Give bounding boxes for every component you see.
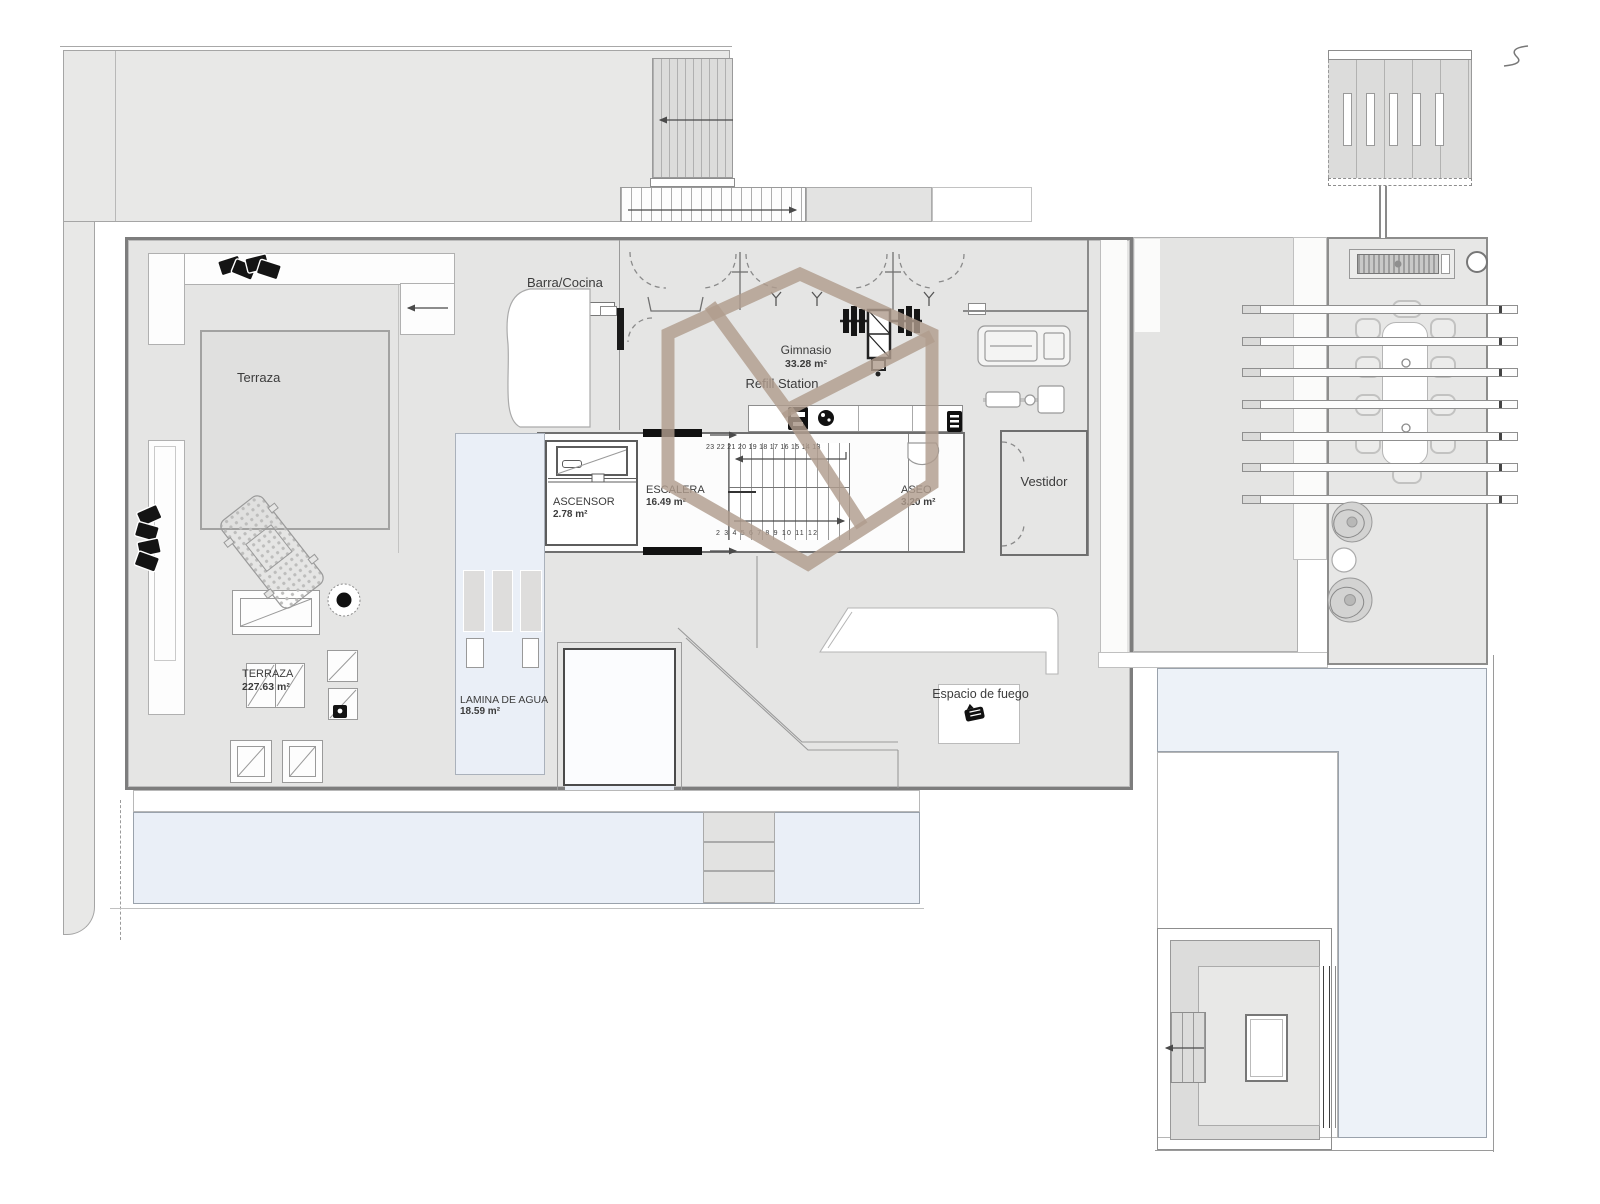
fire-icon xyxy=(963,701,985,722)
lounger xyxy=(213,489,331,615)
treadmill-icon xyxy=(978,326,1070,366)
elevator-detail xyxy=(548,474,636,482)
rowing-machine-icon xyxy=(983,386,1064,413)
vestidor-doors xyxy=(1002,442,1024,546)
bench-band xyxy=(820,608,1058,674)
aseo-name: ASEO xyxy=(901,484,935,497)
ramp-lines xyxy=(678,556,898,788)
label-refill-station: Refill Station xyxy=(722,377,842,392)
folding-door-wall xyxy=(628,252,964,342)
stair-numbers-lower: 2 3 4 5 6 7 8 9 10 11 12 xyxy=(716,530,850,538)
terraza-name: TERRAZA xyxy=(242,668,293,681)
ascensor-name: ASCENSOR xyxy=(553,496,615,509)
label-terraza-area: TERRAZA 227.63 m² xyxy=(242,668,293,693)
grinder-icon xyxy=(818,410,834,426)
label-terraza: Terraza xyxy=(237,371,280,386)
escalera-area: 16.49 m² xyxy=(646,497,705,509)
coffee-machine-icon xyxy=(788,407,808,430)
ac-center-dot xyxy=(1395,261,1402,268)
gimnasio-name: Gimnasio xyxy=(756,344,856,358)
label-lamina: LAMINA DE AGUA 18.59 m² xyxy=(460,694,548,718)
kitchen-counter xyxy=(507,289,590,427)
speaker-icon xyxy=(333,705,347,718)
direction-arrows xyxy=(408,120,1204,1048)
sink-icon xyxy=(908,443,939,465)
fire-bowl-icon xyxy=(328,584,360,616)
label-espacio-de-fuego: Espacio de fuego xyxy=(918,687,1043,701)
label-vestidor: Vestidor xyxy=(994,475,1094,490)
aseo-area: 3.20 m² xyxy=(901,497,935,509)
sprinkler-icon xyxy=(771,292,934,306)
stair-numbers-upper: 23 22 21 20 19 18 17 16 15 14 13 xyxy=(706,444,852,452)
floor-light-icon xyxy=(1332,548,1356,572)
section-mark-icon xyxy=(1504,46,1528,66)
gimnasio-area: 33.28 m² xyxy=(756,358,856,370)
label-barra-cocina: Barra/Cocina xyxy=(527,276,603,291)
lamina-name: LAMINA DE AGUA xyxy=(460,694,548,706)
ascensor-area: 2.78 m² xyxy=(553,509,615,521)
plants-icon xyxy=(134,504,162,572)
escalera-name: ESCALERA xyxy=(646,484,705,497)
label-gimnasio: Gimnasio 33.28 m² xyxy=(756,344,856,370)
label-escalera: ESCALERA 16.49 m² xyxy=(646,484,705,508)
linework-overlay xyxy=(0,0,1600,1204)
label-ascensor: ASCENSOR 2.78 m² xyxy=(553,496,615,520)
lamina-area: 18.59 m² xyxy=(460,706,548,718)
plants-icon xyxy=(217,254,281,281)
table-dots xyxy=(1402,359,1410,432)
floor-plan: Barra/Cocina Terraza Gimnasio 33.28 m² R… xyxy=(0,0,1600,1204)
terraza-area: 227.63 m² xyxy=(242,681,293,693)
label-aseo: ASEO 3.20 m² xyxy=(901,484,935,508)
fridge-icon xyxy=(947,411,962,432)
